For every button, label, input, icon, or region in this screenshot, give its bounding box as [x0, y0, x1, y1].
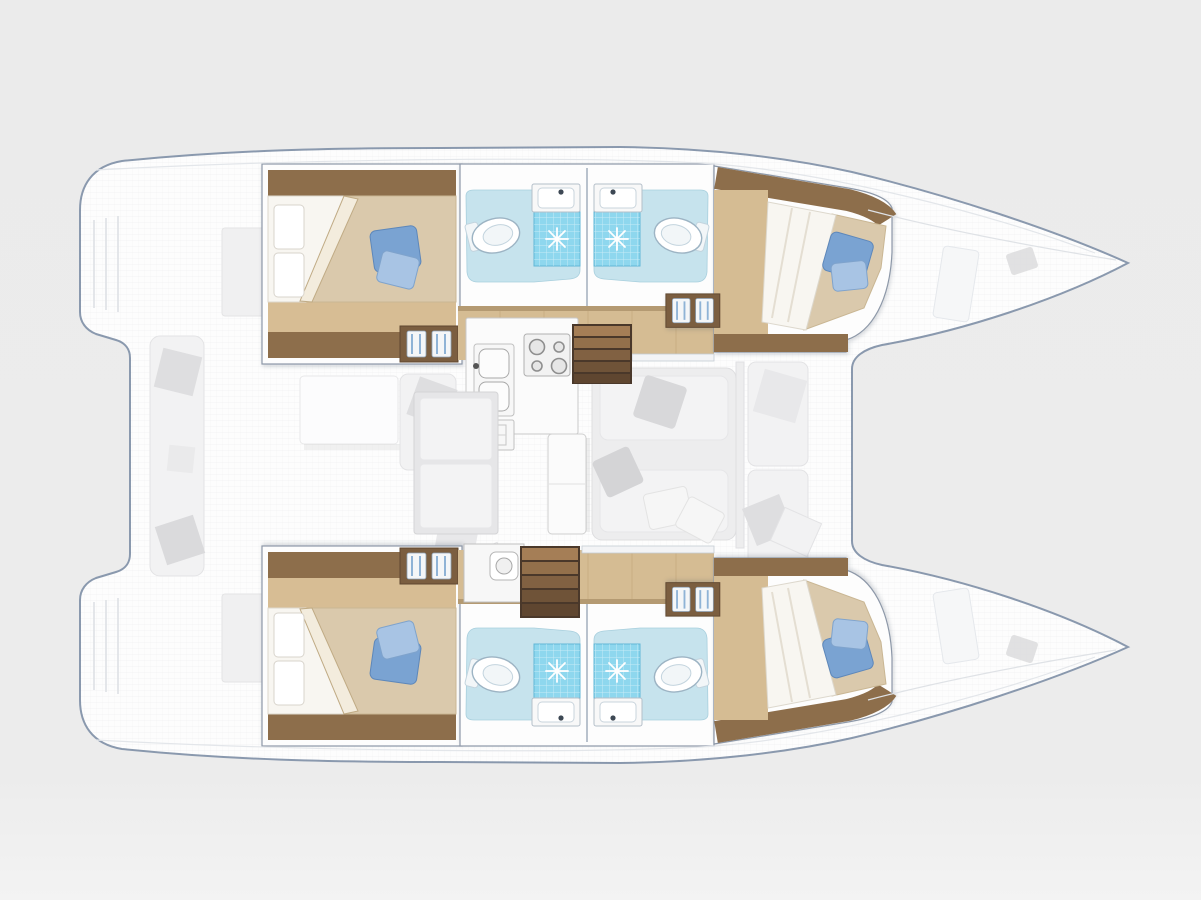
seat-back: [736, 362, 744, 548]
lounge-sofa: [591, 368, 736, 544]
stairs-port-icon: [572, 324, 632, 384]
dinette-table: [548, 434, 590, 534]
stove-icon: [524, 334, 570, 376]
cockpit-table: [300, 376, 398, 444]
catamaran-floorplan: Catamaran yacht deck plan: [0, 0, 1201, 900]
wall: [632, 354, 714, 361]
stairs-starboard-icon: [520, 546, 580, 618]
cushion-pillow: [167, 445, 196, 474]
wall: [582, 546, 714, 553]
table-shadow: [304, 444, 402, 450]
galley-appliance: [464, 544, 524, 602]
